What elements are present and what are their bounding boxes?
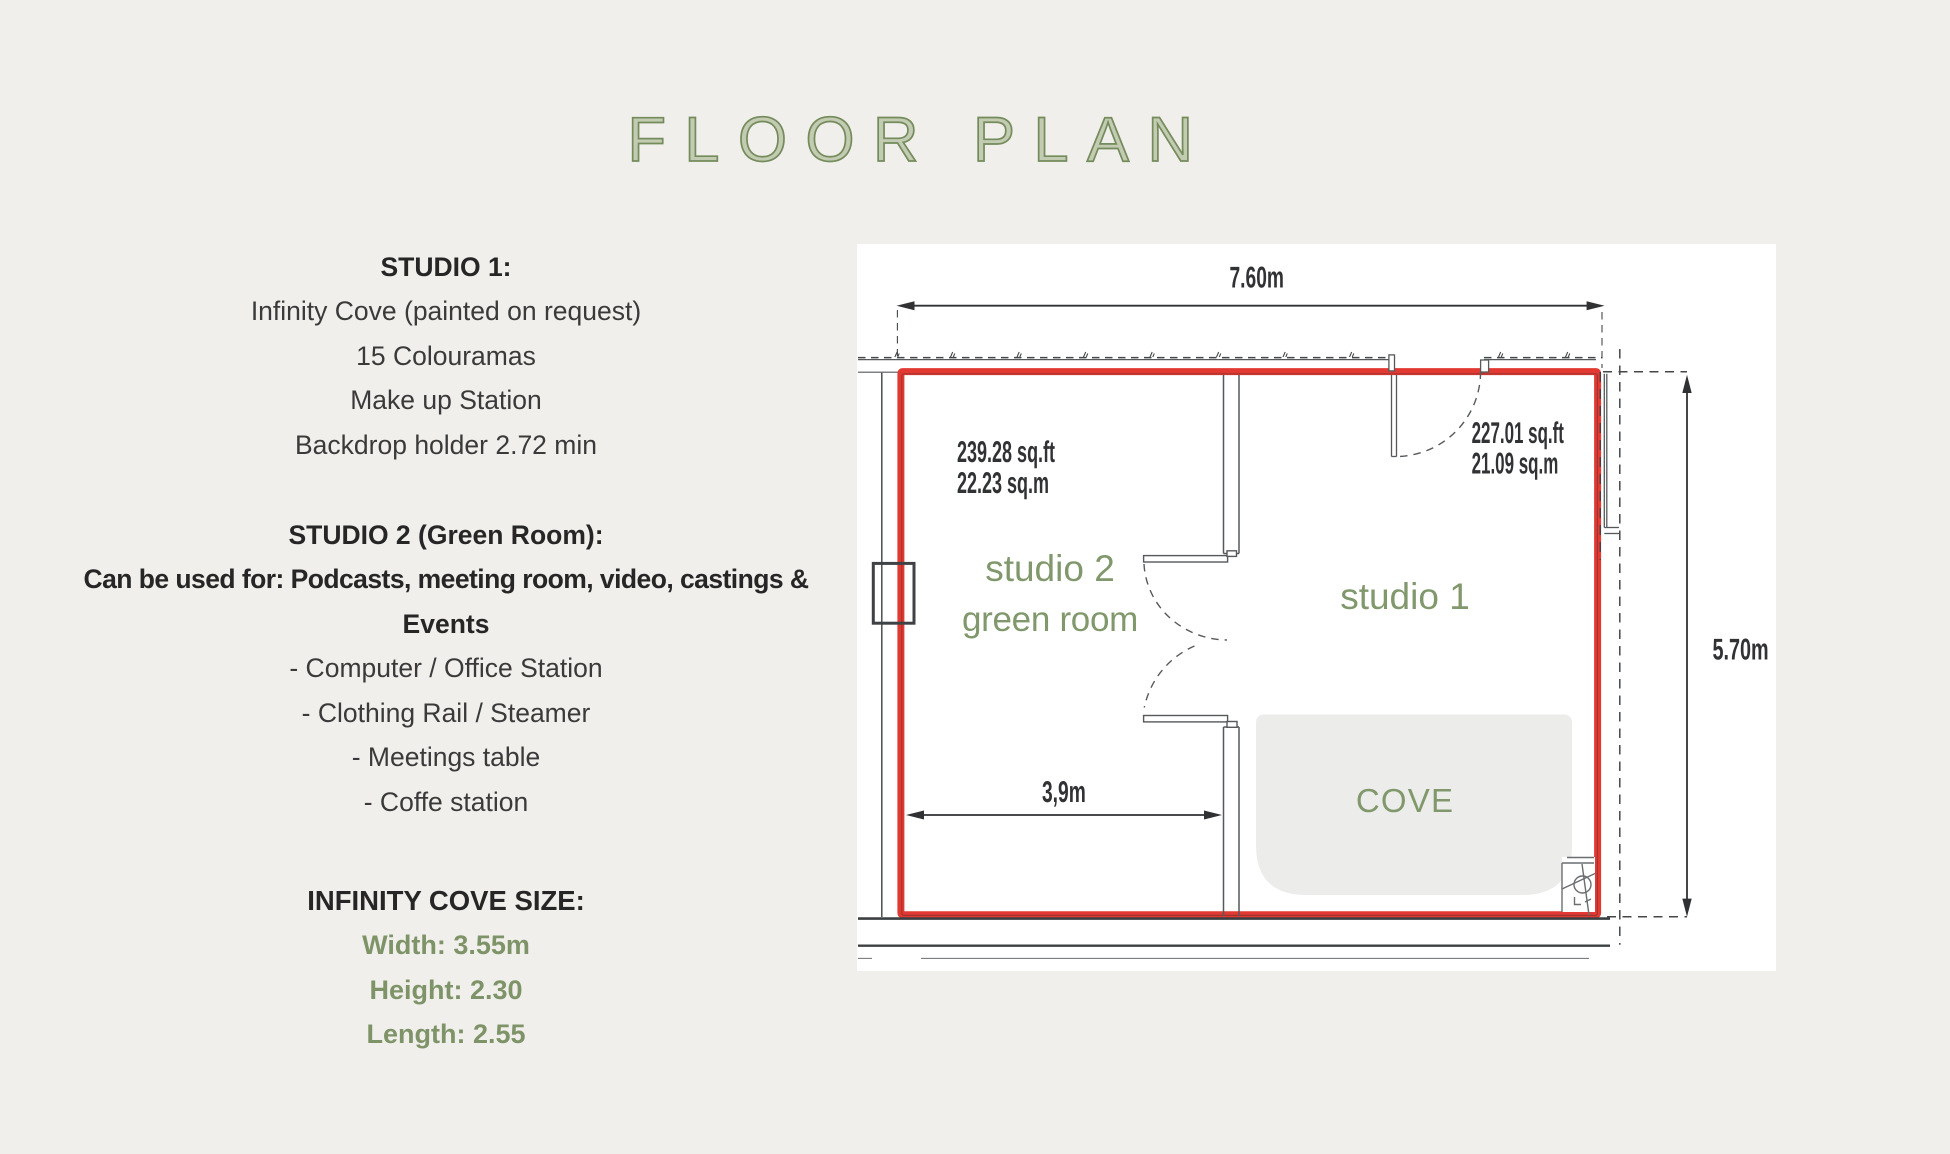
svg-text:239.28 sq.ft: 239.28 sq.ft — [957, 436, 1055, 469]
svg-text:227.01 sq.ft: 227.01 sq.ft — [1472, 417, 1564, 450]
svg-text:22.23 sq.m: 22.23 sq.m — [957, 467, 1049, 500]
svg-text:3,9m: 3,9m — [1042, 776, 1086, 809]
svg-text:7.60m: 7.60m — [1230, 262, 1284, 295]
svg-text:21.09 sq.m: 21.09 sq.m — [1472, 447, 1559, 480]
svg-text:5.70m: 5.70m — [1713, 634, 1769, 667]
